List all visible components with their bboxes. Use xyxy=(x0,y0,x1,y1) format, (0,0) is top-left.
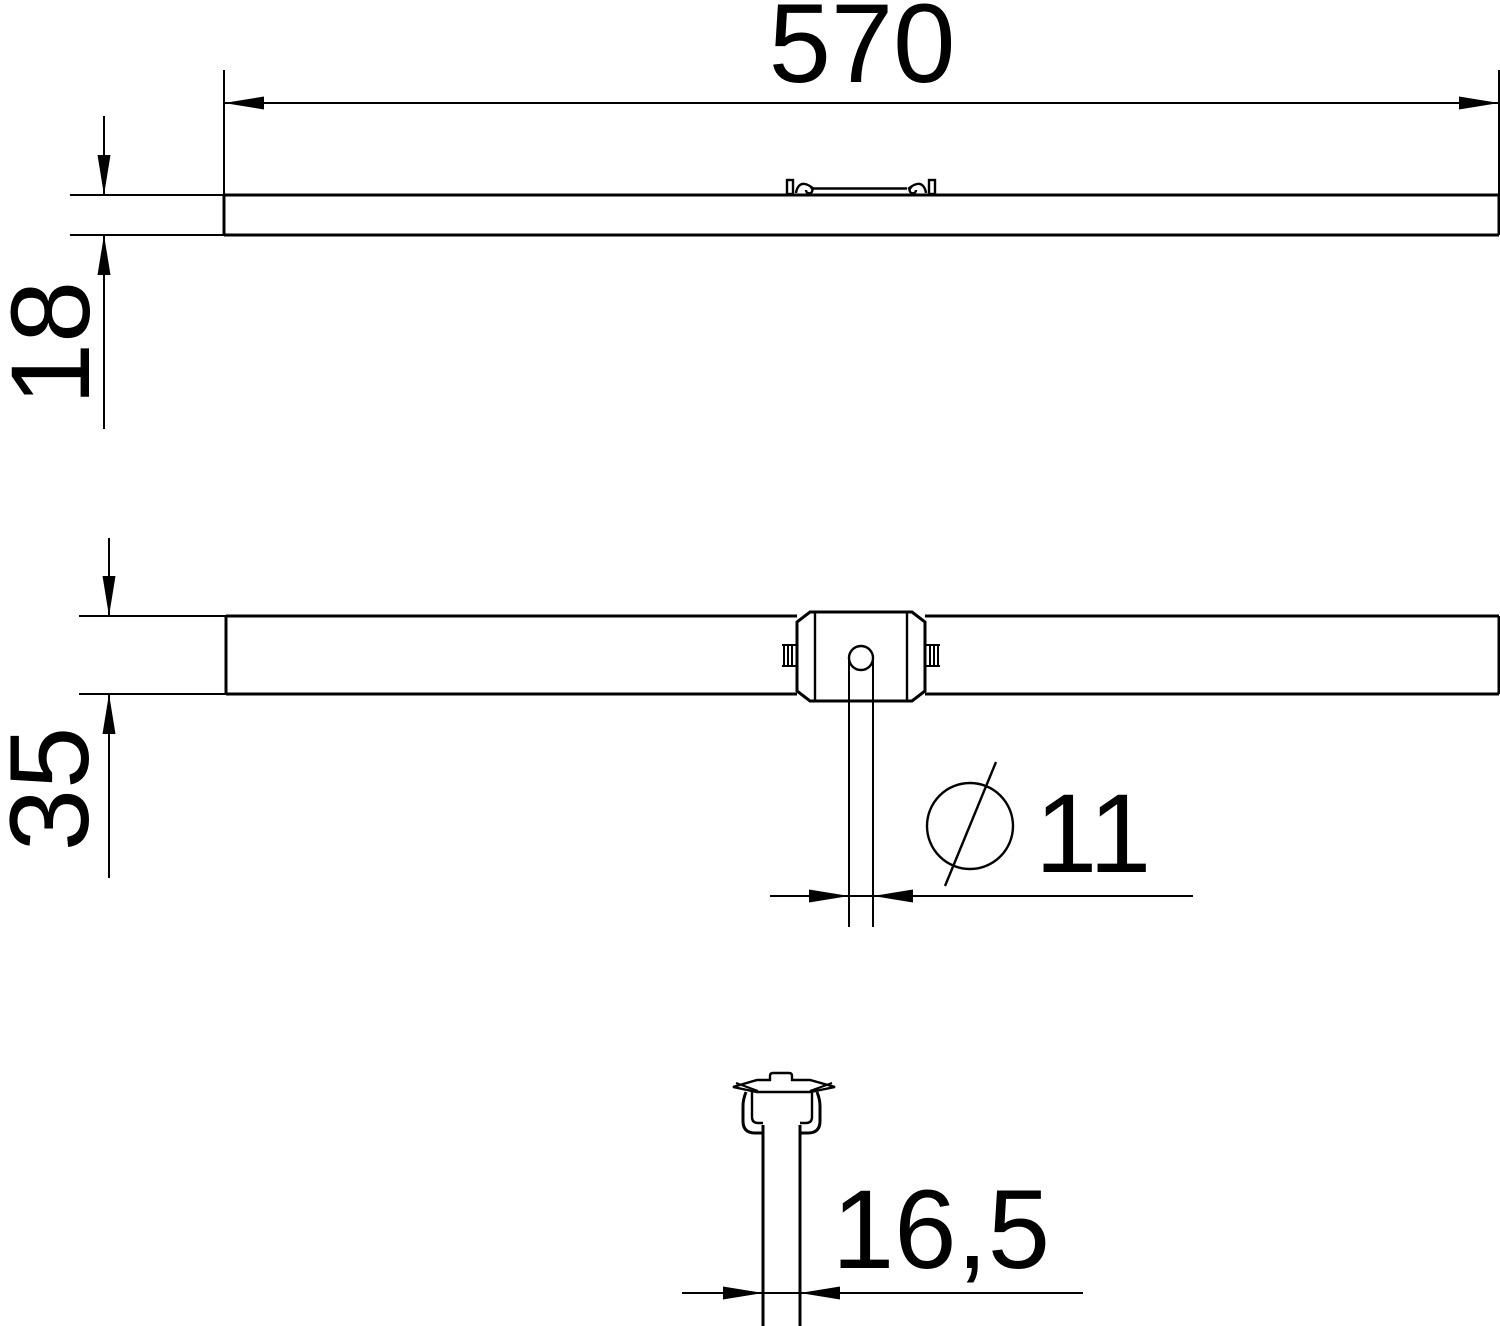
dim-35-label: 35 xyxy=(0,727,112,852)
top-view: 570 18 xyxy=(0,0,1499,429)
arrowhead-down xyxy=(98,155,111,195)
strip-profile xyxy=(733,1073,835,1092)
middle-view: 35 11 xyxy=(0,538,1499,927)
technical-drawing-page: 570 18 xyxy=(0,0,1500,1326)
dimension-drawing: 570 18 xyxy=(0,0,1500,1326)
arrowhead-right xyxy=(1459,97,1499,110)
dim-hole-11: 11 xyxy=(770,658,1193,927)
dim-16-5-label: 16,5 xyxy=(832,1167,1050,1292)
rod xyxy=(763,1125,800,1326)
dim-35: 35 xyxy=(0,538,116,878)
arrowhead-up xyxy=(98,235,111,275)
mounting-hole xyxy=(849,646,873,670)
clip-detail xyxy=(787,180,935,194)
dim-16-5: 16,5 xyxy=(682,1167,1083,1300)
diameter-symbol xyxy=(927,762,1013,886)
dim-18-label: 18 xyxy=(0,281,113,406)
arrowhead-left xyxy=(873,890,913,903)
coupler-block xyxy=(782,612,940,701)
arrowhead-right xyxy=(723,1287,763,1300)
dim-570: 570 xyxy=(224,0,1499,110)
arrowhead-down xyxy=(103,576,116,616)
dim-18: 18 xyxy=(0,116,113,429)
bottom-view: 16,5 xyxy=(682,1073,1083,1326)
right-tab xyxy=(925,645,940,666)
left-tab xyxy=(782,645,797,666)
arrowhead-right xyxy=(809,890,849,903)
dim-11-label: 11 xyxy=(1035,771,1151,896)
arrowhead-left xyxy=(224,97,264,110)
dim-570-label: 570 xyxy=(769,0,956,106)
channel-cup xyxy=(743,1092,820,1133)
